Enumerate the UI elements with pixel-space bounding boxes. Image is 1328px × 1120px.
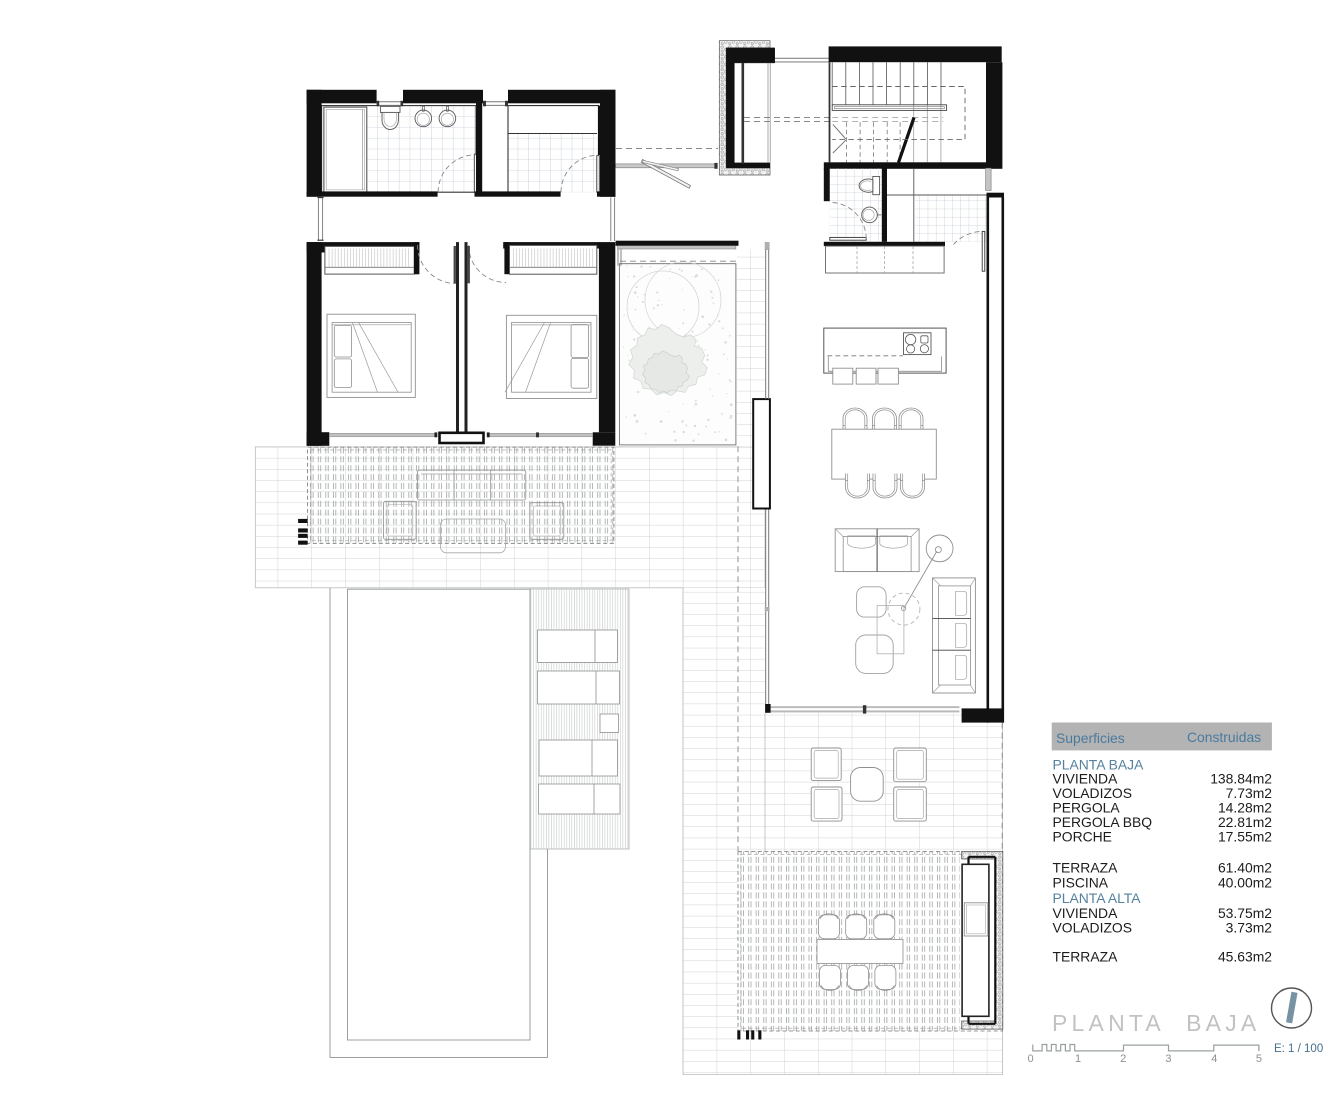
svg-text:5: 5 — [1256, 1053, 1262, 1065]
svg-text:17.55m2: 17.55m2 — [1218, 829, 1272, 845]
svg-text:PISCINA: PISCINA — [1053, 875, 1109, 891]
svg-text:Superficies: Superficies — [1056, 730, 1125, 746]
svg-text:Construidas: Construidas — [1187, 729, 1261, 745]
svg-text:4: 4 — [1211, 1053, 1217, 1065]
svg-text:61.40m2: 61.40m2 — [1218, 860, 1272, 876]
svg-text:VOLADIZOS: VOLADIZOS — [1053, 920, 1133, 936]
svg-text:45.63m2: 45.63m2 — [1218, 949, 1272, 965]
svg-text:PLANTA BAJA: PLANTA BAJA — [1052, 1010, 1260, 1036]
svg-text:0: 0 — [1027, 1053, 1033, 1065]
svg-text:1: 1 — [1075, 1053, 1081, 1065]
svg-text:E: 1 / 100: E: 1 / 100 — [1274, 1043, 1323, 1055]
svg-text:PLANTA ALTA: PLANTA ALTA — [1053, 890, 1142, 906]
svg-text:40.00m2: 40.00m2 — [1218, 875, 1272, 891]
svg-text:2: 2 — [1120, 1053, 1126, 1065]
svg-text:TERRAZA: TERRAZA — [1053, 949, 1119, 965]
svg-text:PORCHE: PORCHE — [1053, 829, 1112, 845]
svg-text:TERRAZA: TERRAZA — [1053, 860, 1119, 876]
svg-text:3: 3 — [1165, 1053, 1171, 1065]
svg-text:3.73m2: 3.73m2 — [1226, 920, 1273, 936]
